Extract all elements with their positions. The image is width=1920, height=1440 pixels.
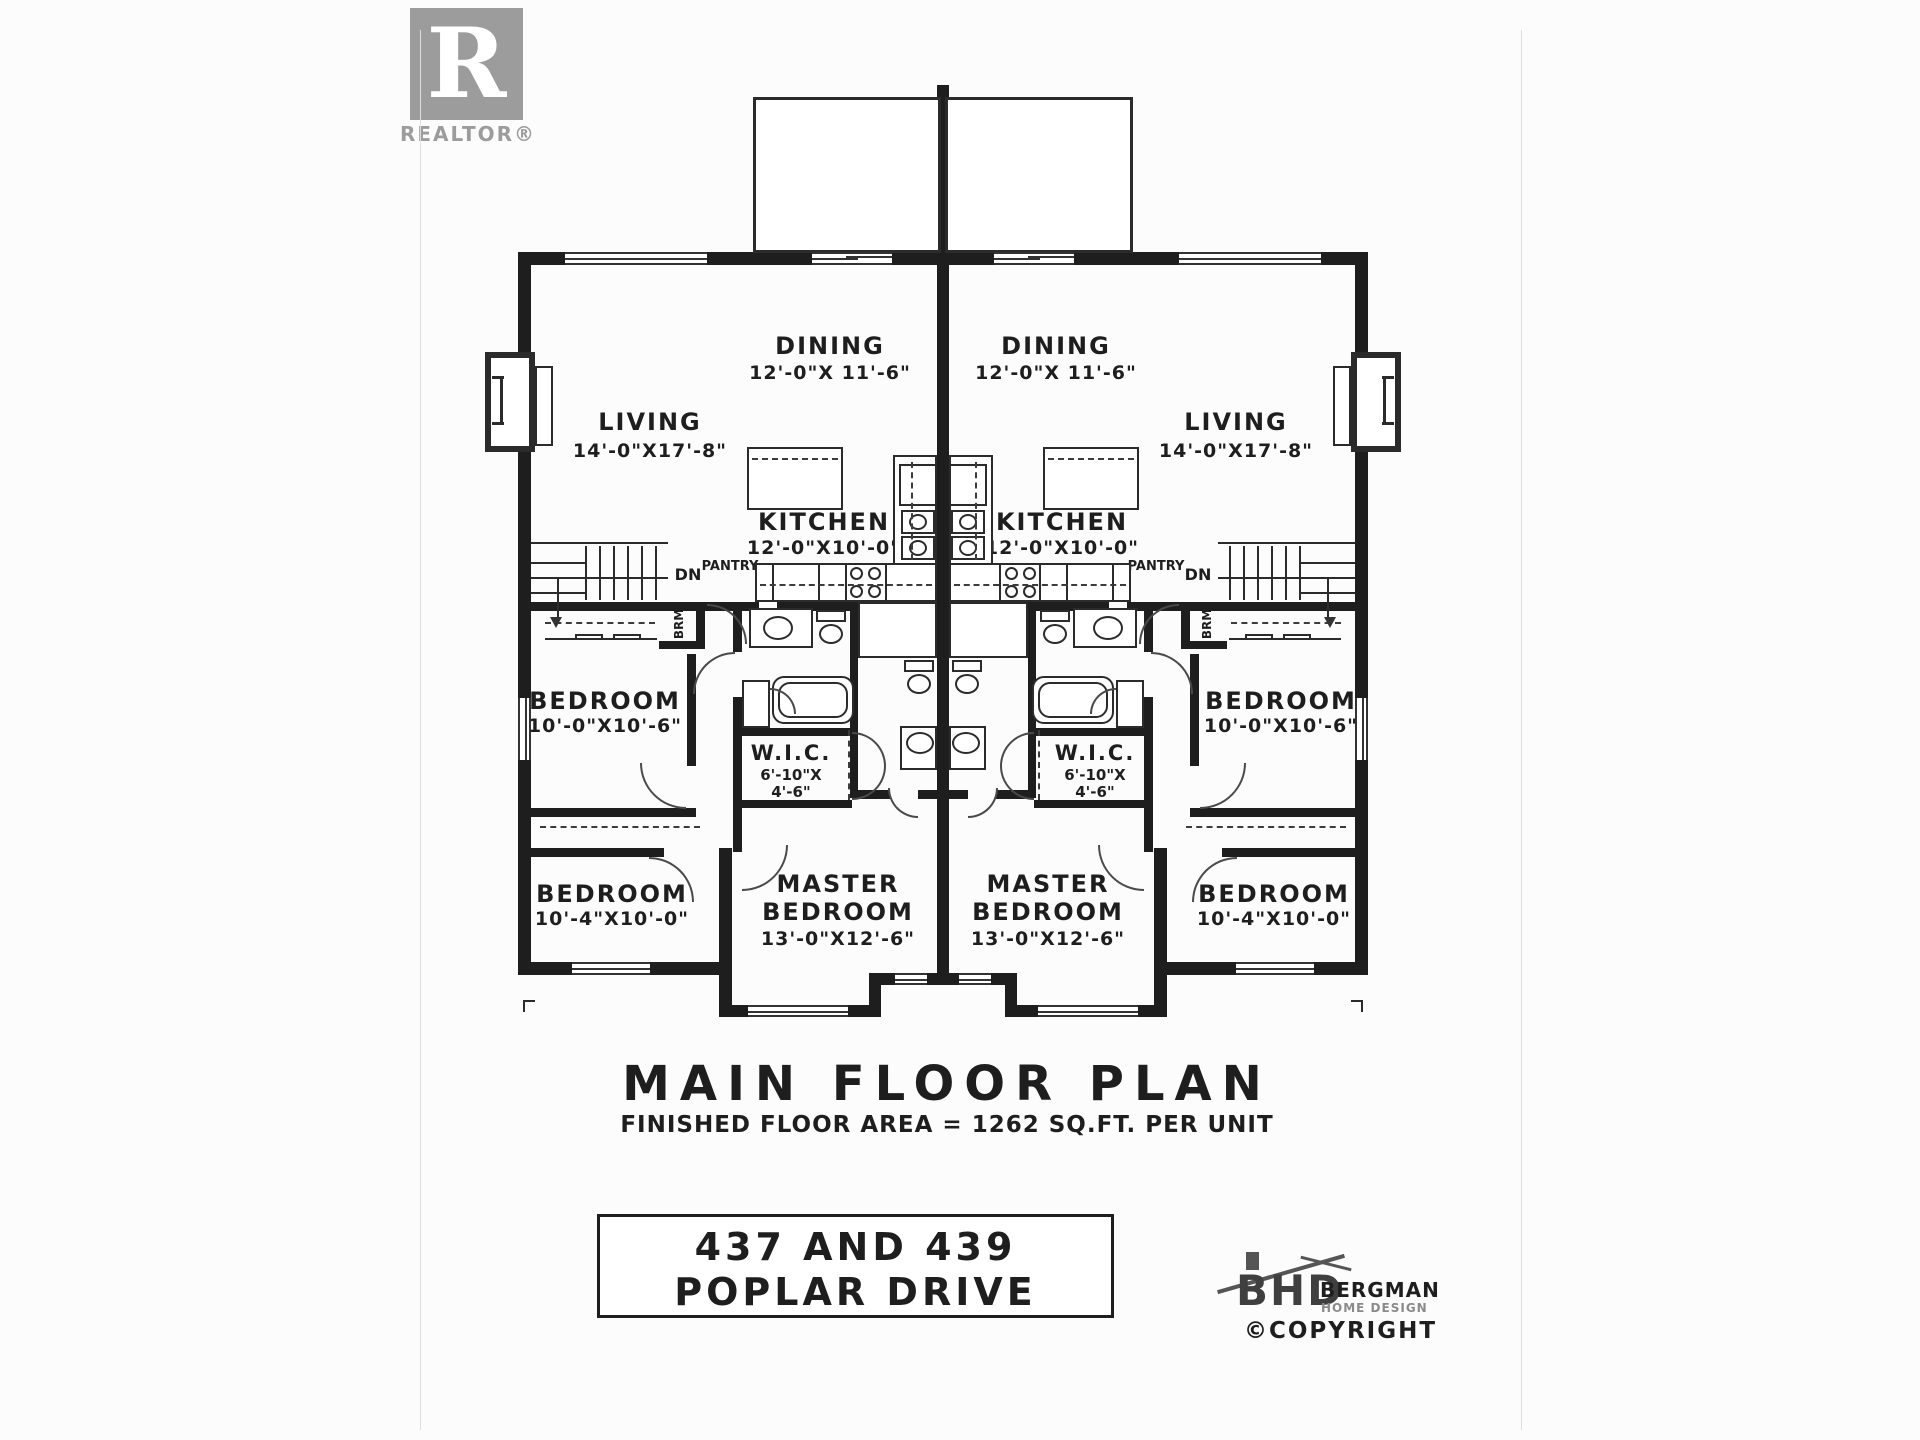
realtor-label: REALTOR® — [398, 122, 538, 146]
window — [572, 962, 650, 975]
patio-outline — [753, 97, 941, 253]
wall — [1144, 808, 1153, 852]
fireplace-detail — [500, 378, 503, 424]
floor-plan-page: R REALTOR® PATIO 12'-0"X10'-0" PATIO 12'… — [0, 0, 1920, 1440]
address-line1: 437 AND 439 — [600, 1225, 1111, 1270]
wall — [719, 848, 732, 966]
counter-dash — [1048, 458, 1134, 460]
sink — [952, 732, 980, 754]
stair-arrow-head — [1324, 617, 1336, 628]
room-dims-bedroom2-right: 10'-4"X10'-0" — [1184, 908, 1364, 930]
fireplace-detail — [492, 376, 504, 379]
room-dims-living-right: 14'-0"X17'-8" — [1146, 440, 1326, 462]
sink — [1093, 616, 1123, 640]
sink — [906, 732, 934, 754]
room-label-living-right: LIVING — [1146, 408, 1326, 436]
room-dims-kitchen-right: 12'-0"X10'-0" — [972, 537, 1152, 559]
stove-burner — [1005, 567, 1018, 580]
stove-burner — [850, 567, 863, 580]
fireplace-bay — [1351, 352, 1401, 452]
stair-rail — [1218, 542, 1355, 544]
closet-front — [1229, 638, 1341, 640]
window — [518, 698, 531, 760]
page-edge — [420, 30, 421, 1430]
counter-dash — [1038, 730, 1040, 800]
stair-tread — [627, 546, 629, 600]
stair-tread — [531, 562, 585, 564]
stair-tread — [655, 546, 657, 600]
room-label-wic-right: W.I.C. — [1035, 741, 1155, 765]
room-dims-bedroom1-left: 10'-0"X10'-6" — [515, 715, 695, 737]
plan-subtitle: FINISHED FLOOR AREA = 1262 SQ.FT. PER UN… — [443, 1112, 1451, 1138]
toilet-bowl — [955, 674, 979, 694]
corner-mark — [1361, 1000, 1363, 1012]
window — [1236, 962, 1314, 975]
door-arc — [649, 857, 694, 902]
kitchen-island — [747, 447, 843, 510]
room-label-kitchen-right: KITCHEN — [972, 508, 1152, 536]
wall — [687, 654, 696, 766]
realtor-logo-letter: R — [427, 16, 507, 112]
page-edge — [1521, 30, 1522, 1430]
fireplace-bay — [485, 352, 535, 452]
stair-tread — [1271, 546, 1273, 600]
door-arc — [1200, 763, 1246, 809]
toilet-bowl — [1043, 624, 1067, 644]
stair-rail — [531, 542, 668, 544]
room-dims2-wic-right: 4'-6" — [1035, 783, 1155, 801]
room-dims-living-left: 14'-0"X17'-8" — [560, 440, 740, 462]
stair-tread — [585, 546, 587, 600]
fridge — [1066, 563, 1114, 602]
stove-burner — [868, 567, 881, 580]
room-label-kitchen-left: KITCHEN — [734, 508, 914, 536]
wall — [1144, 697, 1153, 808]
address-line2: POPLAR DRIVE — [600, 1270, 1111, 1315]
door-arc — [1151, 652, 1193, 694]
room-dims-dining-left: 12'-0"X 11'-6" — [740, 362, 920, 384]
plan-title: MAIN FLOOR PLAN — [443, 1056, 1451, 1112]
stair-arrow-shaft — [557, 577, 559, 619]
stair-tread — [1229, 546, 1231, 600]
window — [1179, 252, 1321, 265]
door-arc — [1000, 732, 1034, 766]
closet-front — [545, 638, 657, 640]
stove-burner — [1023, 567, 1036, 580]
sliding-patio-door — [994, 252, 1074, 265]
stair-tread — [613, 546, 615, 600]
door-arc — [968, 788, 998, 818]
stair-tread — [641, 546, 643, 600]
stove-burner — [1005, 585, 1018, 598]
room-dims-bedroom1-right: 10'-0"X10'-6" — [1191, 715, 1371, 737]
designer-sub: HOME DESIGN — [1321, 1301, 1428, 1315]
room-dims-master-left: 13'-0"X12'-6" — [748, 928, 928, 950]
window — [959, 973, 991, 985]
stair-tread — [1257, 546, 1259, 600]
window — [748, 1005, 848, 1017]
linen-closet — [742, 680, 770, 728]
window — [1038, 1005, 1138, 1017]
wall — [1190, 654, 1199, 766]
wall — [918, 790, 937, 799]
room-dims-bedroom2-left: 10'-4"X10'-0" — [522, 908, 702, 930]
room-dims1-wic-left: 6'-10"X — [731, 766, 851, 784]
stair-arrow-head — [550, 617, 562, 628]
toilet-bowl — [819, 624, 843, 644]
room-label-master2-left: BEDROOM — [748, 898, 928, 926]
counter-dash — [540, 826, 700, 828]
stair-tread — [599, 546, 601, 600]
counter-dash — [1186, 826, 1346, 828]
door-arc — [693, 652, 735, 694]
dishwasher — [899, 464, 937, 506]
sink — [763, 616, 793, 640]
door-arc — [640, 763, 686, 809]
sliding-patio-door — [812, 252, 892, 265]
designer-name: BERGMAN — [1320, 1278, 1440, 1302]
stairs-down-label-left: DN — [668, 565, 708, 584]
toilet-bowl — [907, 674, 931, 694]
window — [895, 973, 927, 985]
room-dims-dining-right: 12'-0"X 11'-6" — [966, 362, 1146, 384]
door-arc — [852, 732, 886, 766]
counter-dash — [760, 584, 932, 586]
wall — [1034, 800, 1144, 808]
stair-direction-line — [1218, 577, 1328, 579]
shower-stall — [949, 602, 1028, 658]
address-box: 437 AND 439 POPLAR DRIVE — [597, 1214, 1114, 1318]
dishwasher — [949, 464, 987, 506]
stair-tread — [1301, 562, 1355, 564]
counter-dash — [911, 462, 913, 560]
room-dims-kitchen-left: 12'-0"X10'-0" — [734, 537, 914, 559]
wall — [949, 790, 968, 799]
counter-dash — [954, 584, 1126, 586]
patio-outline — [945, 97, 1133, 253]
room-dims1-wic-right: 6'-10"X — [1035, 766, 1155, 784]
toilet-tank — [952, 660, 982, 672]
room-label-bedroom1-left: BEDROOM — [515, 687, 695, 715]
toilet-tank — [1040, 610, 1070, 622]
room-label-dining-right: DINING — [966, 332, 1146, 360]
stairs-down-label-right: DN — [1178, 565, 1218, 584]
counter-dash — [752, 458, 838, 460]
toilet-tank — [816, 610, 846, 622]
fireplace-detail — [1383, 378, 1386, 424]
shower-stall — [858, 602, 937, 658]
room-label-bedroom1-right: BEDROOM — [1191, 687, 1371, 715]
fireplace-detail — [1382, 422, 1394, 425]
counter-dash — [975, 462, 977, 560]
fireplace-hearth — [535, 366, 553, 446]
wall — [1190, 808, 1355, 817]
corner-mark — [523, 1000, 525, 1012]
stair-direction-line — [558, 577, 668, 579]
window — [565, 252, 707, 265]
fridge — [772, 563, 820, 602]
stair-arrow-shaft — [1327, 577, 1329, 619]
door-arc — [1192, 857, 1237, 902]
wall — [1222, 848, 1355, 857]
room-dims2-wic-left: 4'-6" — [731, 783, 851, 801]
wall — [531, 808, 696, 817]
room-label-living-left: LIVING — [560, 408, 740, 436]
wall — [733, 808, 742, 852]
stove-burner — [1023, 585, 1036, 598]
room-dims-master-right: 13'-0"X12'-6" — [958, 928, 1138, 950]
wall — [1181, 641, 1227, 649]
toilet-tank — [904, 660, 934, 672]
door-arc — [888, 788, 918, 818]
window — [1355, 698, 1368, 760]
wall — [1154, 848, 1167, 966]
counter-dash — [848, 730, 850, 800]
stove-burner — [850, 585, 863, 598]
kitchen-island — [1043, 447, 1139, 510]
fireplace-detail — [1382, 376, 1394, 379]
room-label-dining-left: DINING — [740, 332, 920, 360]
linen-closet — [1116, 680, 1144, 728]
wall — [531, 848, 664, 857]
room-label-wic-left: W.I.C. — [731, 741, 851, 765]
wall — [733, 697, 742, 808]
fireplace-detail — [492, 422, 504, 425]
stove-burner — [868, 585, 881, 598]
fireplace-hearth — [1333, 366, 1351, 446]
realtor-logo-icon: R — [410, 8, 523, 120]
wall — [742, 728, 852, 736]
stair-tread — [1243, 546, 1245, 600]
stair-tread — [1285, 546, 1287, 600]
room-label-master2-right: BEDROOM — [958, 898, 1138, 926]
copyright-label: ©COPYRIGHT — [1244, 1318, 1437, 1344]
wall — [659, 641, 705, 649]
wall — [1034, 728, 1144, 736]
wall — [742, 800, 852, 808]
